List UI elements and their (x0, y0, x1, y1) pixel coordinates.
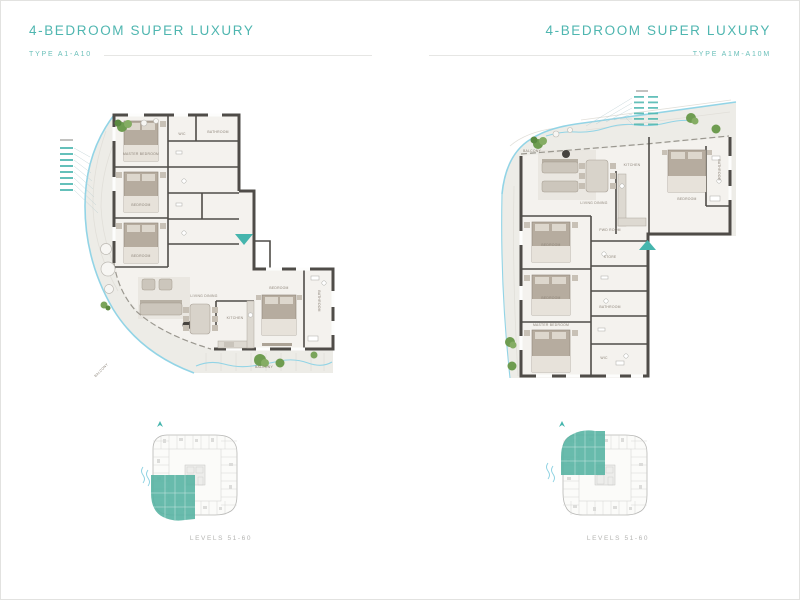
keyplan-left (125, 415, 265, 527)
room-label: BALCONY (255, 365, 273, 369)
coffee-table (562, 150, 570, 158)
highlighted-unit-quadrant (151, 475, 195, 521)
room-label: BATHROOM (599, 305, 620, 309)
bed (662, 150, 712, 192)
room-label: BATHROOM (717, 159, 721, 180)
bed (524, 330, 578, 372)
room-label: MASTER BEDROOM (123, 152, 159, 156)
north-arrow-icon (559, 421, 565, 427)
room-label: STORE (604, 255, 617, 259)
levels-caption-left: LEVELS 51-60 (146, 535, 296, 542)
room-label: KITCHEN (227, 316, 244, 320)
room-label: BALCONY (94, 362, 110, 378)
room-label: BEDROOM (131, 203, 150, 207)
water-waves-icon (142, 467, 150, 486)
room-label: KITCHEN (624, 163, 641, 167)
brochure-page: 4-BEDROOM SUPER LUXURY TYPE A1-A10 4-BED… (0, 0, 800, 600)
levels-caption-right: LEVELS 51-60 (543, 535, 693, 542)
room-label: BALCONY (523, 149, 541, 153)
floorplan-right-type-a1m-a10m: BALCONY LIVING DINING KITCHEN BEDROOM BA… (486, 86, 796, 396)
keyplan-right (535, 415, 675, 527)
room-label: LIVING DINING (580, 201, 607, 205)
dining-set (579, 160, 616, 192)
room-label: BEDROOM (541, 296, 560, 300)
right-plan-title: 4-BEDROOM SUPER LUXURY (546, 23, 772, 38)
room-label: LIVING DINING (190, 294, 217, 298)
room-label: PWD ROOM (599, 228, 620, 232)
room-label: BEDROOM (541, 243, 560, 247)
bed (524, 222, 578, 262)
room-label: WIC (178, 132, 186, 136)
room-label: MASTER BEDROOM (533, 323, 569, 327)
room-label: WIC (600, 356, 608, 360)
right-plan-type-label: TYPE A1M-A10M (693, 51, 771, 58)
left-plan-title: 4-BEDROOM SUPER LUXURY (29, 23, 255, 38)
left-plan-type-label: TYPE A1-A10 (29, 51, 92, 58)
floorplan-left-type-a1-a10: MASTER BEDROOM BEDROOM BEDROOM LIVING DI… (56, 101, 356, 401)
highlighted-unit-quadrant (561, 430, 605, 475)
room-label: BATHROOM (317, 290, 321, 311)
room-label: BEDROOM (131, 254, 150, 258)
divider-line (429, 55, 699, 56)
dining-set (183, 304, 218, 334)
room-label: BEDROOM (269, 286, 288, 290)
water-waves-icon (547, 463, 555, 482)
room-label: BATHROOM (207, 130, 228, 134)
divider-line (104, 55, 372, 56)
room-label: BEDROOM (677, 197, 696, 201)
north-arrow-icon (157, 421, 163, 427)
bed (524, 275, 578, 315)
